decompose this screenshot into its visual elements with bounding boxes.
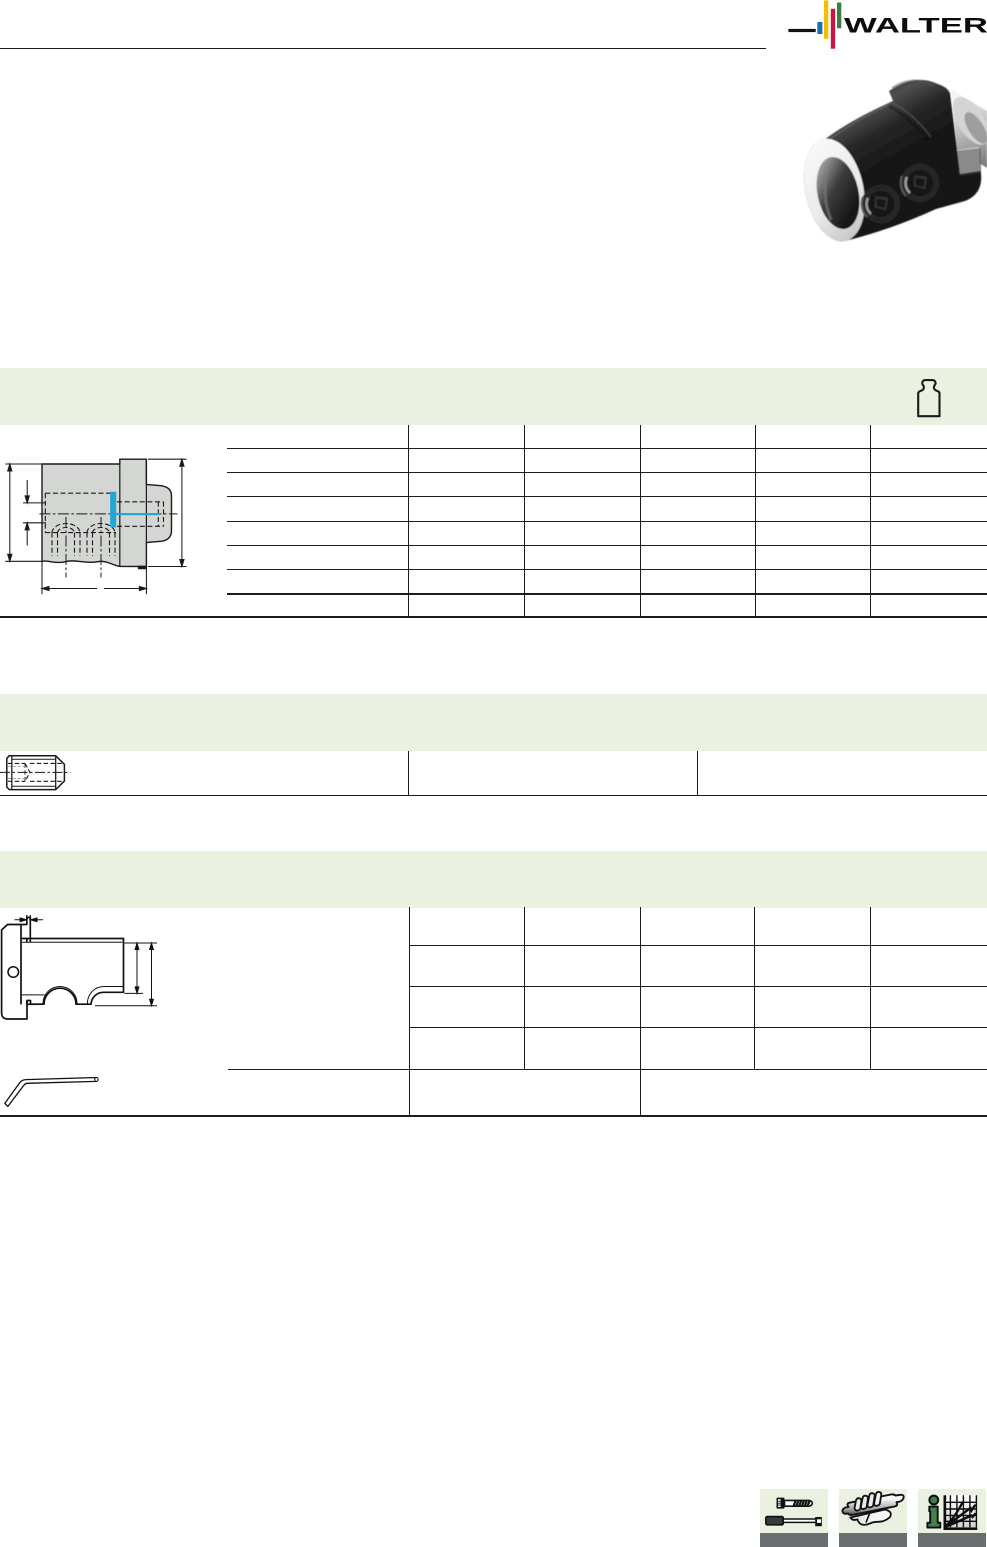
svg-text:WALTER: WALTER [844,14,987,38]
